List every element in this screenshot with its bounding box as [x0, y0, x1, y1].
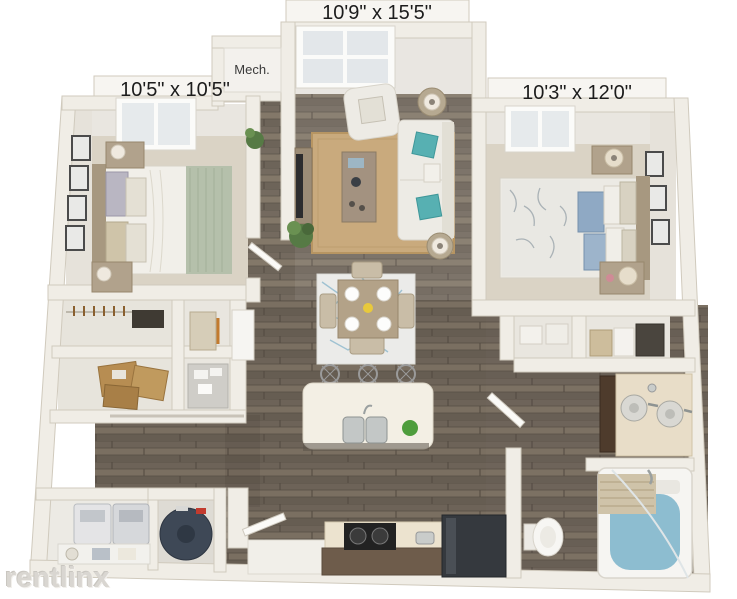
- bedroom-left-right-wall-lower: [246, 278, 260, 302]
- water-heater-top-wall: [148, 488, 224, 500]
- tv-console: [295, 148, 312, 224]
- closet-storage-unit: [190, 312, 218, 350]
- dining-table: [338, 280, 398, 338]
- room-label-bedroom-left: 10'5" x 10'5": [120, 79, 230, 101]
- storage-box: [614, 328, 634, 356]
- bathtub: [598, 468, 692, 578]
- towel-stack: [546, 324, 568, 344]
- dining-chair: [352, 262, 382, 278]
- bedroom-right-window: [505, 106, 575, 152]
- room-label-mech: Mech.: [234, 62, 269, 77]
- folded-clothes: [132, 310, 164, 328]
- bed-left: [92, 164, 232, 276]
- vanity-tall-cabinet: [600, 376, 616, 452]
- nightstand-right-top: [592, 146, 632, 174]
- towel-stack: [520, 326, 542, 344]
- armchair-pillow: [358, 96, 385, 123]
- water-heater-right-wall: [214, 488, 226, 572]
- toilet: [524, 518, 563, 556]
- box-label: [112, 370, 126, 379]
- dining-chair: [320, 294, 336, 328]
- bedroom-left-bottom-wall: [48, 285, 248, 300]
- bedroom-left-right-wall-upper: [246, 96, 260, 238]
- floorplan-render: 10'9" x 15'5" 10'5" x 10'5" 10'3" x 12'0…: [0, 0, 737, 599]
- bathroom-left-wall: [506, 448, 521, 578]
- laundry-room: [58, 504, 212, 564]
- teal-pillow: [416, 194, 441, 219]
- mech-top-wall: [212, 36, 285, 48]
- plate: [377, 317, 391, 331]
- rentlinx-watermark: rentlinx: [5, 562, 110, 595]
- pillow: [106, 172, 128, 216]
- plate: [345, 317, 359, 331]
- floorplan-page: 10'9" x 15'5" 10'5" x 10'5" 10'3" x 12'0…: [0, 0, 737, 599]
- island-plant: [402, 420, 418, 436]
- kitchen-island: [303, 383, 433, 451]
- linen-left-wall: [500, 316, 514, 360]
- desk-nook: [188, 364, 228, 408]
- living-bedroom-divider-wall: [472, 22, 486, 312]
- dining-chair: [398, 294, 414, 328]
- tv: [296, 154, 303, 218]
- blue-pillow: [578, 192, 604, 232]
- plate: [345, 287, 359, 301]
- side-table-bottom: [427, 233, 453, 259]
- flower-centerpiece: [363, 303, 373, 313]
- linen-divider-wall: [572, 316, 586, 362]
- nightstand-right-bottom: [600, 262, 644, 294]
- pillow: [604, 186, 622, 224]
- washer: [74, 504, 111, 544]
- basket: [590, 330, 612, 356]
- pillow: [620, 182, 636, 224]
- counter-white-section: [248, 540, 328, 574]
- pillow: [126, 224, 146, 262]
- nightstand-left-bottom: [92, 262, 132, 292]
- book: [348, 158, 364, 168]
- nightstand-left-top: [106, 142, 144, 168]
- teal-pillow: [412, 132, 438, 158]
- bathroom-top-wall: [514, 358, 695, 372]
- side-table-top: [418, 88, 446, 116]
- cooktop: [344, 523, 396, 550]
- bedroom-right-bottom-wall: [472, 300, 695, 316]
- kitchen-entry-column: [228, 488, 248, 548]
- pillow: [106, 222, 128, 266]
- room-label-living: 10'9" x 15'5": [322, 2, 432, 24]
- folded-towels-blue: [92, 548, 110, 560]
- vanity: [616, 374, 692, 456]
- plate: [377, 287, 391, 301]
- sofa: [398, 120, 454, 240]
- floral-duvet: [502, 180, 580, 276]
- laundry-top-wall: [36, 488, 156, 500]
- pillow: [126, 178, 146, 216]
- sofa-back: [442, 122, 454, 238]
- dark-bins: [636, 324, 664, 356]
- headboard-left: [92, 164, 106, 276]
- laundry-basket: [66, 548, 78, 560]
- sage-blanket: [186, 166, 232, 274]
- living-room-window: [296, 26, 395, 88]
- room-label-bedroom-right: 10'3" x 12'0": [522, 82, 632, 104]
- island-cabinet-shadow: [303, 443, 429, 451]
- refrigerator: [442, 515, 506, 577]
- closet-divider-wall: [172, 300, 184, 415]
- tub-towel: [598, 474, 656, 514]
- dining-chair: [350, 336, 384, 354]
- armchair: [343, 83, 402, 142]
- decor-vase: [351, 177, 361, 187]
- pot: [416, 532, 434, 544]
- folded-towels-white: [118, 548, 136, 560]
- white-pillow: [424, 164, 440, 182]
- living-left-wall: [281, 22, 295, 240]
- hall-door-panel: [232, 310, 254, 360]
- dryer: [113, 504, 149, 544]
- coffee-table: [342, 152, 376, 222]
- lower-cabinets: [322, 548, 443, 575]
- heater-valve: [196, 508, 206, 514]
